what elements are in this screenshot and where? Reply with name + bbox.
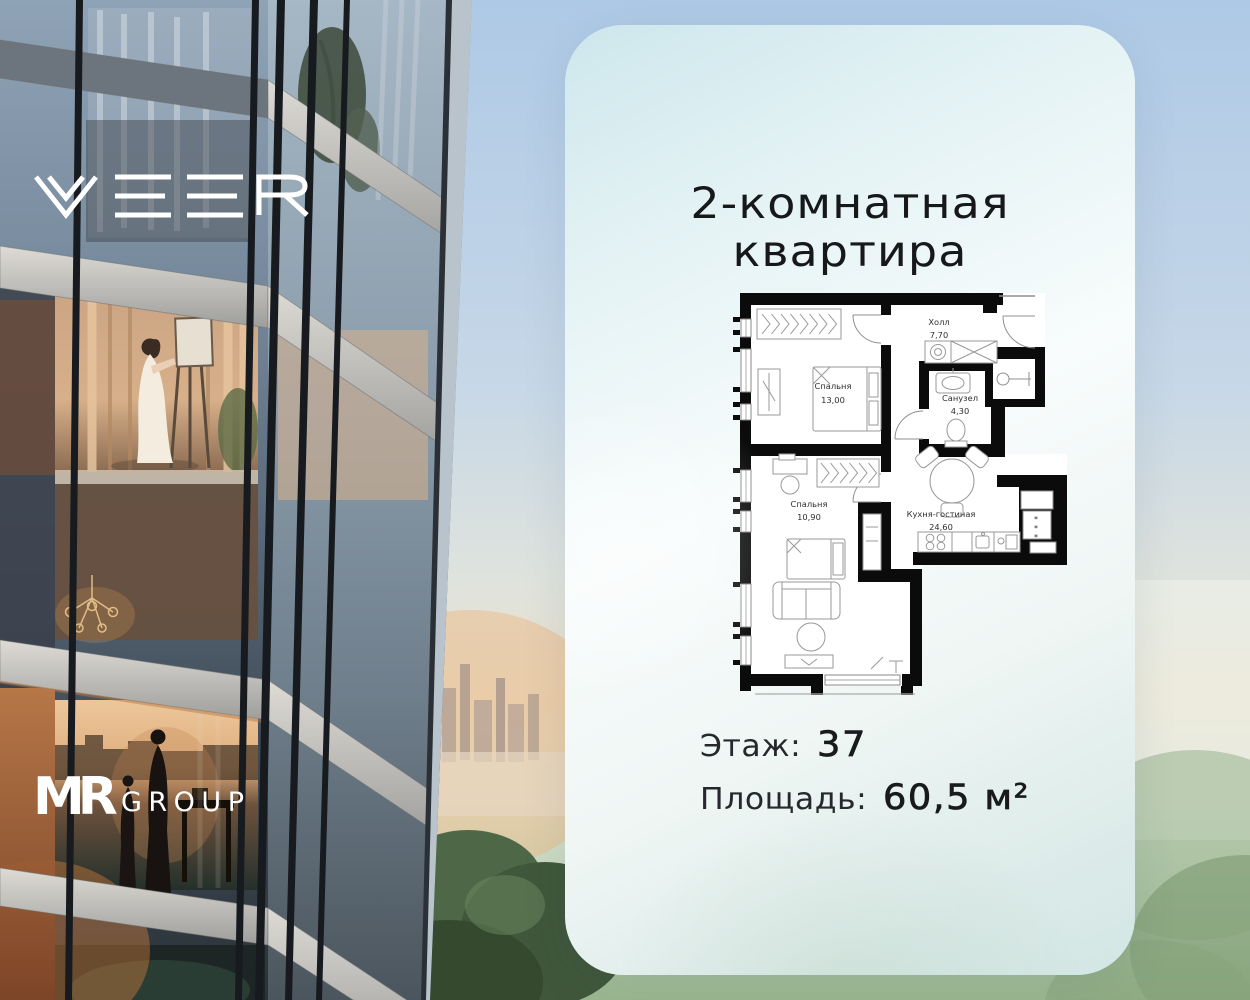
area-label: Площадь: [700, 782, 867, 817]
floor-row: Этаж: 37 [700, 725, 867, 765]
veer-r [259, 177, 307, 215]
snowflake-icon: * [1034, 524, 1038, 533]
room-area: 13,00 [821, 395, 845, 405]
veer-v-inner [49, 177, 83, 198]
room-area: 10,90 [797, 512, 821, 522]
room-area: 4,30 [951, 406, 969, 416]
mr-group-logo: MR GROUP [33, 768, 278, 824]
floor-value: 37 [817, 725, 867, 765]
room-name: Кухня-гостиная [907, 509, 976, 519]
room-name: Холл [928, 317, 949, 327]
title-line-2: квартира [561, 228, 1139, 276]
promo-image: VEER MR GROUP 2-комнатная квартира [0, 0, 1250, 1000]
room-area: 24,60 [929, 522, 953, 532]
card-title: 2-комнатная квартира [561, 180, 1139, 276]
veer-logo-mark [33, 170, 311, 228]
veer-e1 [115, 177, 171, 215]
chandelier-room [55, 484, 258, 643]
veer-e2 [187, 177, 243, 215]
title-line-1: 2-комнатная [561, 180, 1139, 228]
snowflake-icon: * [1034, 533, 1038, 542]
room-name: Санузел [942, 393, 978, 403]
veer-logo: VEER [33, 170, 311, 228]
building-facade [0, 0, 472, 1000]
group-logo-text: GROUP [121, 787, 250, 818]
mr-logo-text: MR [33, 768, 117, 824]
balcony-slab [55, 470, 258, 484]
room-area: 7,70 [930, 330, 948, 340]
shower [993, 359, 1035, 399]
room-name: Спальня [791, 499, 828, 509]
furniture-hall [925, 341, 997, 363]
apartment-card[interactable]: 2-комнатная квартира [565, 25, 1135, 975]
floor-label: Этаж: [700, 729, 801, 764]
area-row: Площадь: 60,5 м² [700, 778, 1030, 818]
room-name: Спальня [815, 381, 852, 391]
canvas [175, 317, 213, 366]
snowflake-icon: * [1034, 515, 1038, 524]
floor-plan: * * * [733, 289, 1070, 701]
area-value: 60,5 м² [883, 778, 1030, 818]
